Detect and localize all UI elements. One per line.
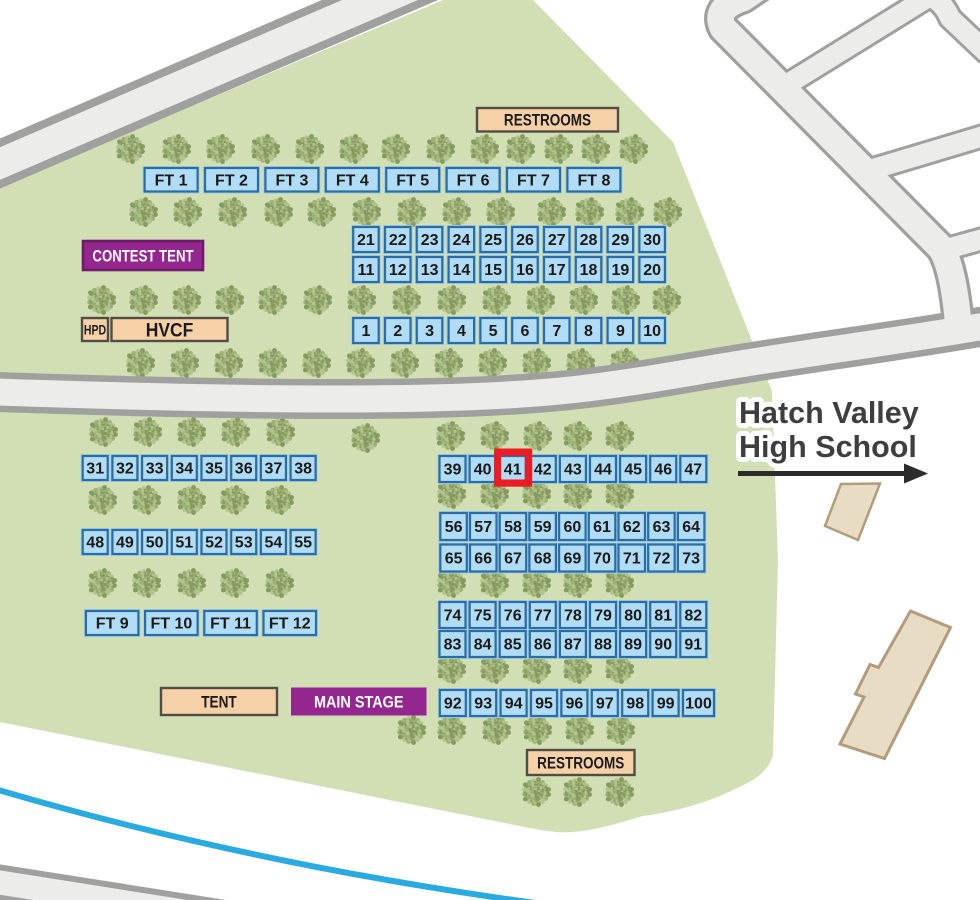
svg-text:Hatch Valley: Hatch Valley: [739, 396, 919, 430]
svg-text:28: 28: [580, 232, 598, 249]
svg-text:26: 26: [516, 232, 534, 249]
svg-text:78: 78: [564, 608, 582, 625]
svg-text:43: 43: [564, 462, 582, 479]
svg-text:100: 100: [685, 696, 712, 713]
svg-text:91: 91: [684, 637, 702, 654]
svg-text:72: 72: [653, 551, 671, 568]
svg-text:55: 55: [294, 535, 312, 552]
svg-text:14: 14: [453, 262, 471, 279]
svg-text:56: 56: [445, 519, 463, 536]
svg-text:2: 2: [393, 323, 402, 340]
svg-text:19: 19: [612, 262, 630, 279]
svg-text:48: 48: [86, 535, 104, 552]
svg-text:93: 93: [474, 696, 492, 713]
svg-text:FT 4: FT 4: [336, 172, 369, 189]
svg-text:FT 6: FT 6: [457, 172, 490, 189]
svg-text:38: 38: [294, 461, 312, 478]
svg-text:99: 99: [657, 696, 675, 713]
svg-text:12: 12: [389, 262, 407, 279]
svg-text:68: 68: [534, 551, 552, 568]
svg-text:FT 1: FT 1: [155, 172, 188, 189]
svg-text:1: 1: [361, 323, 370, 340]
svg-text:53: 53: [235, 535, 253, 552]
svg-text:41: 41: [504, 462, 522, 479]
svg-text:HVCF: HVCF: [146, 319, 194, 341]
svg-text:FT 7: FT 7: [517, 172, 550, 189]
svg-text:32: 32: [116, 461, 134, 478]
svg-text:TENT: TENT: [201, 693, 237, 712]
svg-text:FT 2: FT 2: [215, 172, 248, 189]
svg-text:FT 3: FT 3: [275, 172, 308, 189]
svg-text:67: 67: [504, 551, 522, 568]
svg-text:71: 71: [623, 551, 641, 568]
svg-text:49: 49: [116, 535, 134, 552]
svg-text:22: 22: [389, 232, 407, 249]
svg-text:92: 92: [444, 696, 462, 713]
svg-text:30: 30: [643, 232, 661, 249]
svg-text:60: 60: [564, 519, 582, 536]
svg-text:8: 8: [584, 323, 593, 340]
svg-text:95: 95: [535, 696, 553, 713]
svg-text:81: 81: [654, 608, 672, 625]
svg-text:3: 3: [425, 323, 434, 340]
svg-text:RESTROOMS: RESTROOMS: [504, 111, 591, 130]
svg-text:57: 57: [474, 519, 492, 536]
svg-text:51: 51: [175, 535, 193, 552]
svg-text:58: 58: [504, 519, 522, 536]
svg-text:HPD: HPD: [84, 322, 106, 338]
svg-text:36: 36: [235, 461, 253, 478]
svg-text:29: 29: [612, 232, 630, 249]
svg-text:74: 74: [444, 608, 462, 625]
svg-text:18: 18: [580, 262, 598, 279]
svg-text:52: 52: [205, 535, 223, 552]
svg-text:89: 89: [624, 637, 642, 654]
svg-text:21: 21: [357, 232, 375, 249]
svg-text:16: 16: [516, 262, 534, 279]
svg-text:17: 17: [548, 262, 566, 279]
svg-text:82: 82: [684, 608, 702, 625]
svg-text:35: 35: [205, 461, 223, 478]
svg-text:85: 85: [504, 637, 522, 654]
svg-text:High School: High School: [739, 430, 917, 464]
svg-text:31: 31: [86, 461, 104, 478]
svg-text:62: 62: [623, 519, 641, 536]
svg-text:77: 77: [534, 608, 552, 625]
svg-text:40: 40: [474, 462, 492, 479]
svg-text:65: 65: [445, 551, 463, 568]
svg-text:34: 34: [175, 461, 193, 478]
svg-text:84: 84: [474, 637, 492, 654]
svg-text:54: 54: [265, 535, 283, 552]
svg-text:80: 80: [624, 608, 642, 625]
svg-text:11: 11: [357, 262, 374, 279]
svg-text:59: 59: [534, 519, 552, 536]
svg-text:7: 7: [552, 323, 561, 340]
svg-text:13: 13: [421, 262, 439, 279]
svg-text:FT 8: FT 8: [577, 172, 610, 189]
svg-text:20: 20: [643, 262, 661, 279]
svg-text:86: 86: [534, 637, 552, 654]
svg-text:47: 47: [684, 462, 702, 479]
svg-text:5: 5: [489, 323, 498, 340]
svg-text:76: 76: [504, 608, 522, 625]
svg-text:46: 46: [654, 462, 672, 479]
svg-text:61: 61: [593, 519, 611, 536]
svg-text:64: 64: [682, 519, 700, 536]
svg-text:RESTROOMS: RESTROOMS: [537, 754, 624, 773]
svg-text:97: 97: [596, 696, 614, 713]
svg-text:75: 75: [474, 608, 492, 625]
svg-text:63: 63: [653, 519, 671, 536]
svg-text:FT 9: FT 9: [96, 616, 129, 633]
svg-text:94: 94: [505, 696, 523, 713]
svg-text:FT 11: FT 11: [210, 616, 251, 633]
svg-text:15: 15: [484, 262, 502, 279]
svg-text:44: 44: [594, 462, 612, 479]
svg-text:FT 5: FT 5: [396, 172, 429, 189]
svg-text:98: 98: [626, 696, 644, 713]
svg-text:CONTEST TENT: CONTEST TENT: [92, 247, 193, 266]
svg-text:70: 70: [593, 551, 611, 568]
svg-text:33: 33: [146, 461, 164, 478]
svg-text:69: 69: [564, 551, 582, 568]
svg-text:79: 79: [594, 608, 612, 625]
svg-text:9: 9: [616, 323, 625, 340]
svg-text:23: 23: [421, 232, 439, 249]
svg-text:45: 45: [624, 462, 642, 479]
svg-text:73: 73: [682, 551, 700, 568]
svg-text:27: 27: [548, 232, 566, 249]
svg-text:4: 4: [457, 323, 466, 340]
svg-text:6: 6: [521, 323, 530, 340]
svg-text:42: 42: [534, 462, 552, 479]
svg-text:96: 96: [566, 696, 584, 713]
svg-text:90: 90: [654, 637, 672, 654]
svg-text:87: 87: [564, 637, 582, 654]
svg-text:37: 37: [265, 461, 283, 478]
svg-text:24: 24: [453, 232, 471, 249]
svg-text:10: 10: [643, 323, 661, 340]
svg-text:FT 10: FT 10: [151, 616, 193, 633]
svg-text:MAIN STAGE: MAIN STAGE: [314, 694, 404, 712]
svg-text:83: 83: [444, 637, 462, 654]
svg-text:66: 66: [474, 551, 492, 568]
svg-text:50: 50: [146, 535, 164, 552]
svg-text:88: 88: [594, 637, 612, 654]
svg-text:25: 25: [484, 232, 502, 249]
svg-text:39: 39: [444, 462, 462, 479]
svg-text:FT 12: FT 12: [269, 616, 311, 633]
